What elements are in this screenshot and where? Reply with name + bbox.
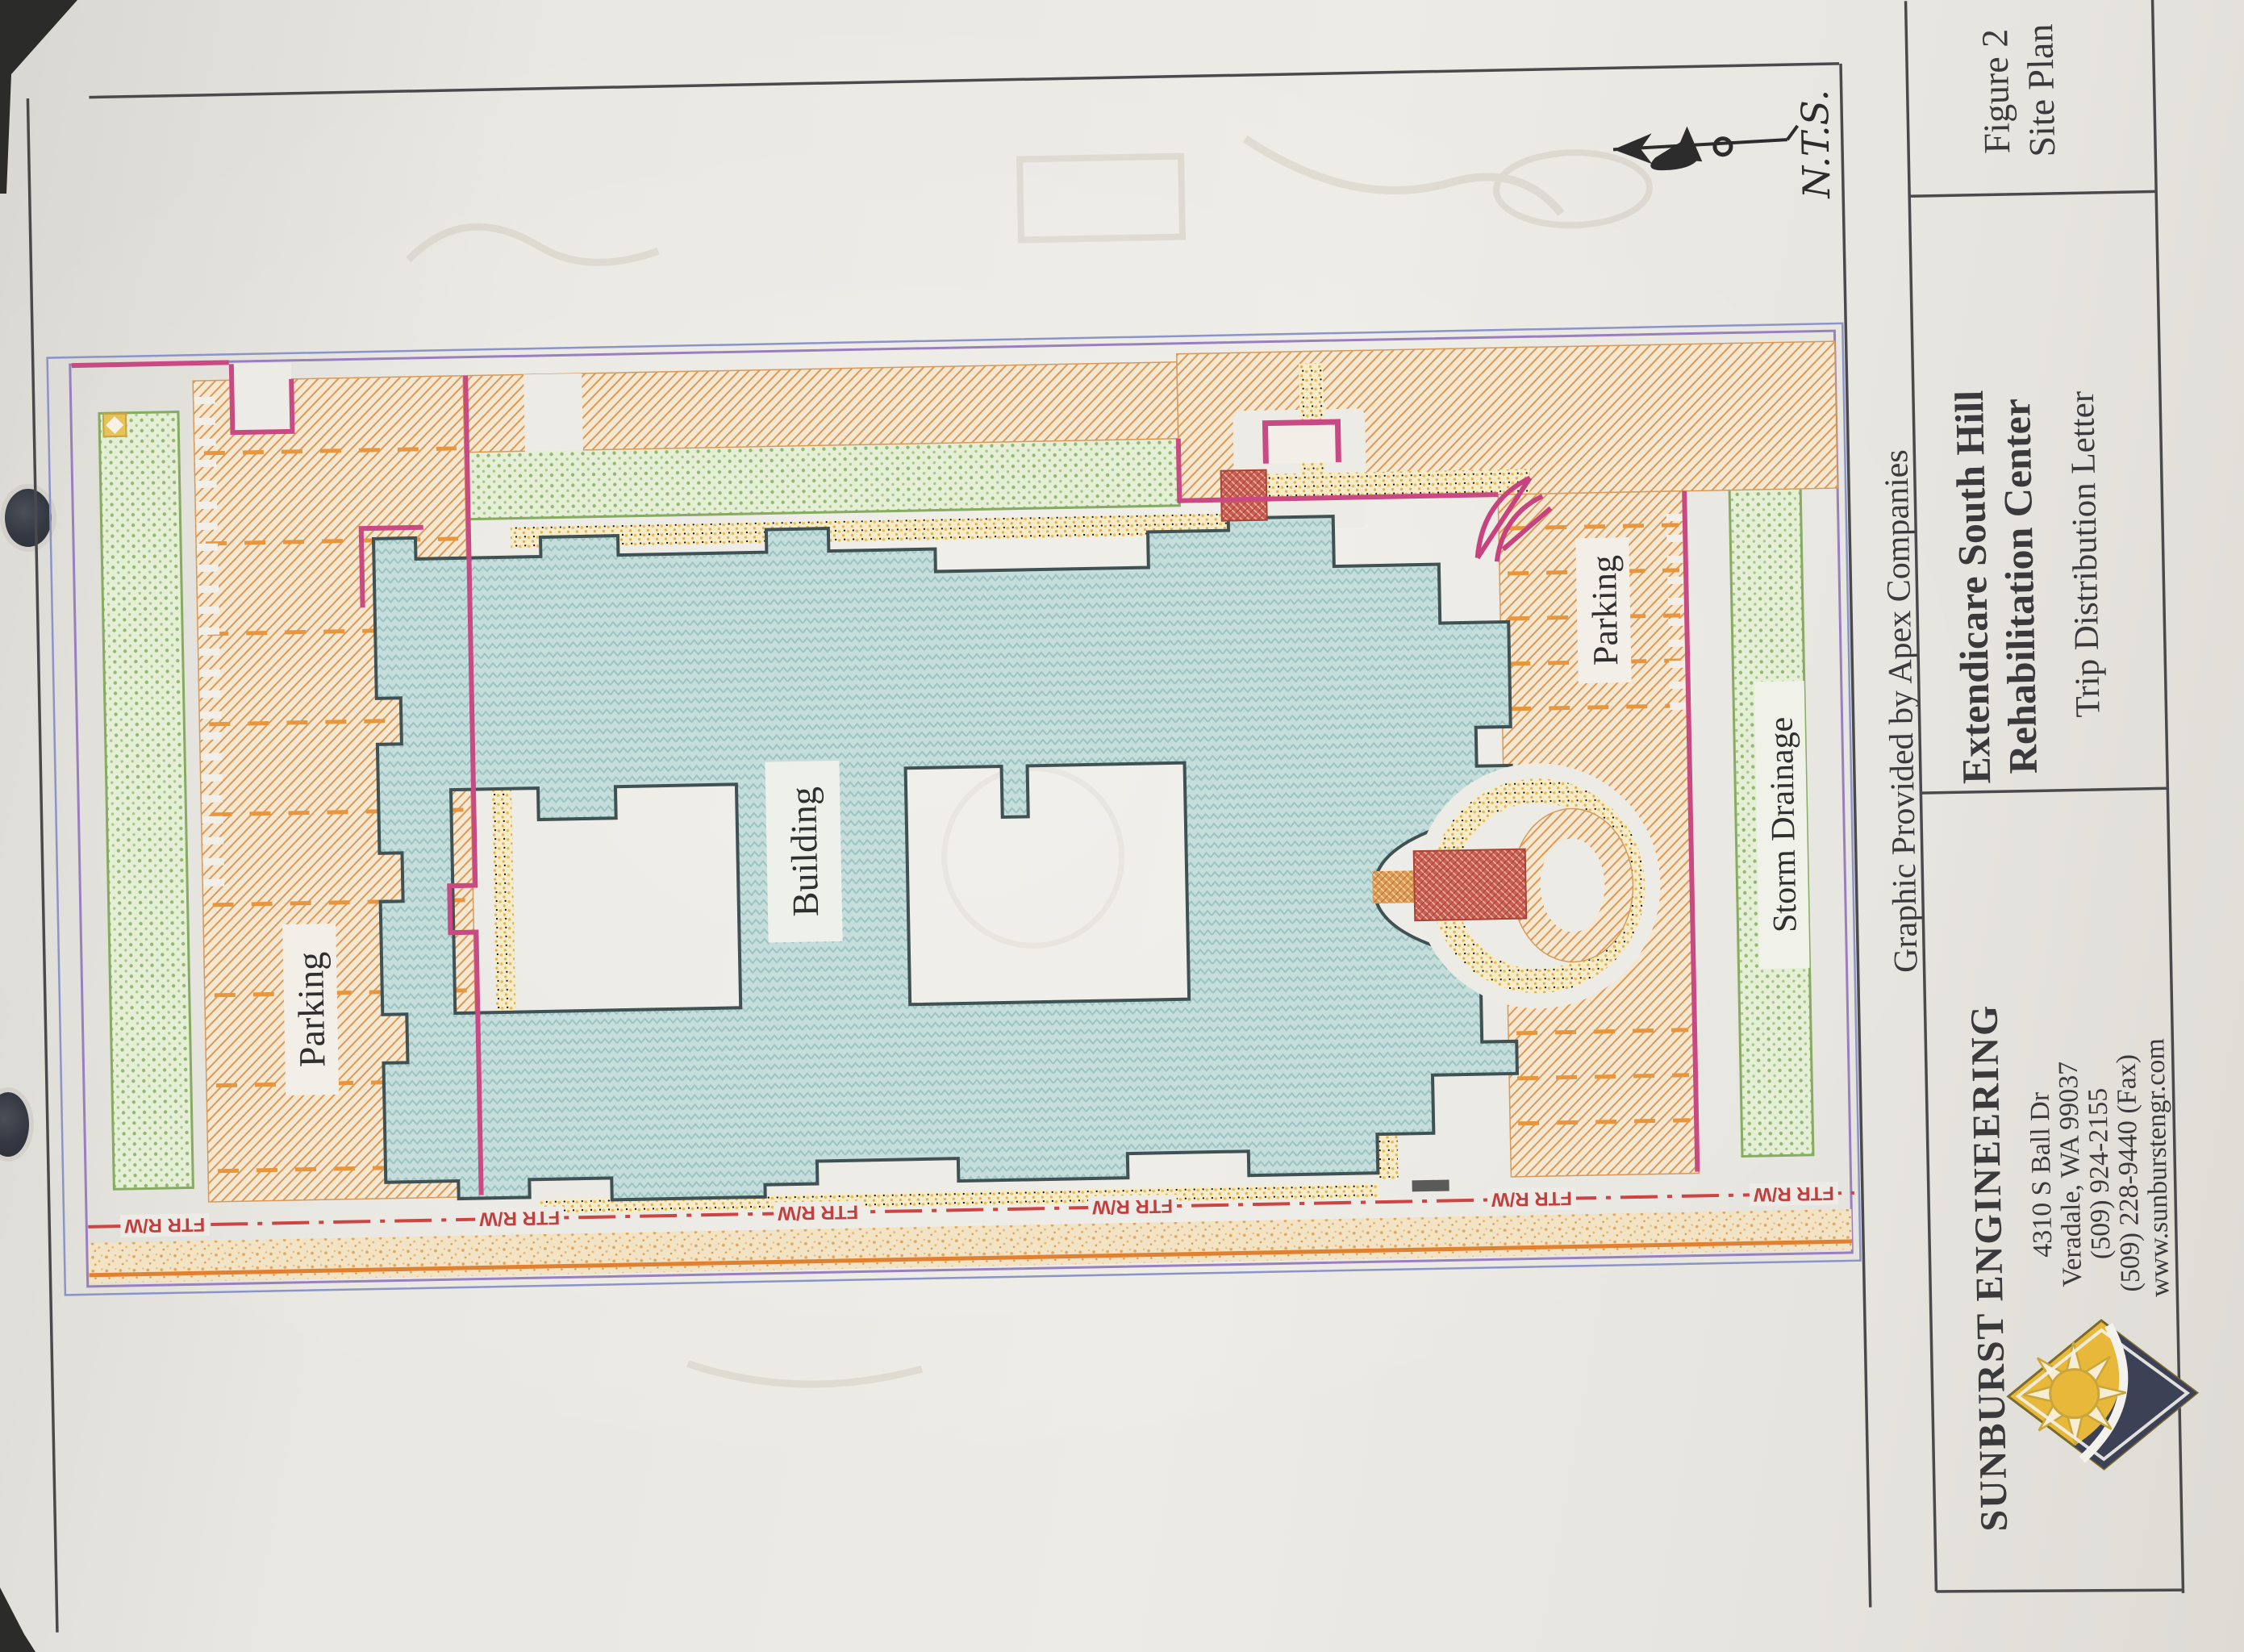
firm-name: SUNBURST ENGINEERING xyxy=(1962,1003,2016,1532)
figure-label: Figure 2 xyxy=(1974,28,2017,154)
figure-subtitle: Site Plan xyxy=(2019,23,2063,157)
parking-left-label: Parking xyxy=(290,951,333,1067)
title-block: Figure 2 Site Plan Extendicare South Hil… xyxy=(1905,0,2200,1598)
firm-phone: (509) 924-2155 xyxy=(2083,1087,2116,1259)
logo-sun xyxy=(2050,1369,2099,1418)
svg-text:FTR R/W: FTR R/W xyxy=(124,1213,206,1237)
svg-text:FTR R/W: FTR R/W xyxy=(1491,1187,1572,1211)
utility-marker xyxy=(103,414,127,437)
project-title-line2: Rehabilitation Center xyxy=(1993,398,2046,774)
svg-text:FTR R/W: FTR R/W xyxy=(1091,1195,1173,1218)
scanned-site-plan-photo: FTR R/W FTR R/W FTR R/W FTR R/W FTR R/W … xyxy=(0,0,2244,1652)
landscape-strip-left xyxy=(99,412,193,1190)
storm-drainage-label: Storm Drainage xyxy=(1763,716,1804,932)
svg-text:FTR R/W: FTR R/W xyxy=(1753,1182,1834,1205)
site-plan-drawing: FTR R/W FTR R/W FTR R/W FTR R/W FTR R/W … xyxy=(0,0,2244,1652)
north-arrow xyxy=(1612,124,1798,171)
firm-website: www.sunburstengr.com xyxy=(2140,1038,2175,1297)
svg-text:FTR R/W: FTR R/W xyxy=(778,1201,859,1224)
svg-text:FTR R/W: FTR R/W xyxy=(479,1207,561,1230)
scale-note: N.T.S. xyxy=(1793,90,1839,200)
firm-address-line1: 4310 S Ball Dr xyxy=(2025,1091,2058,1258)
boundary-monument-mark xyxy=(1412,1179,1449,1191)
building-label: Building xyxy=(782,786,826,917)
project-title-line1: Extendicare South Hill xyxy=(1946,390,1999,784)
entry-canopy xyxy=(1414,849,1527,921)
document-title: Trip Distribution Letter xyxy=(2063,391,2108,718)
entry-walk-pad xyxy=(1372,870,1416,903)
parking-right-label: Parking xyxy=(1584,555,1626,666)
sunburst-logo xyxy=(2007,1319,2198,1471)
